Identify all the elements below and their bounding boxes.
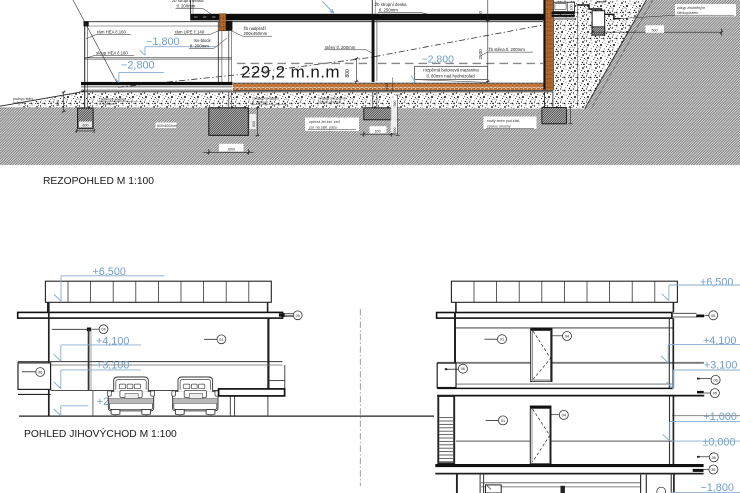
- svg-text:žb nadpraží: žb nadpraží: [244, 26, 267, 31]
- svg-text:04: 04: [565, 335, 569, 339]
- svg-text:hutněný: hutněný: [13, 101, 26, 105]
- svg-text:600: 600: [83, 124, 89, 128]
- svg-text:tl. 300mm: tl. 300mm: [252, 100, 268, 104]
- svg-text:229,2 m.n.m: 229,2 m.n.m: [241, 63, 340, 82]
- svg-text:žb stěna tl. 200mm: žb stěna tl. 200mm: [489, 47, 526, 52]
- svg-text:zal. na zákl. pásu: zal. na zákl. pásu: [309, 126, 337, 130]
- svg-text:36: 36: [712, 456, 716, 460]
- svg-text:200x450mm: 200x450mm: [244, 31, 268, 36]
- svg-text:REZOPOHLED M 1:100: REZOPOHLED M 1:100: [43, 176, 154, 187]
- svg-text:600: 600: [375, 129, 381, 133]
- svg-text:500: 500: [56, 100, 60, 106]
- svg-text:zhutněný podsyp: zhutněný podsyp: [99, 98, 126, 102]
- svg-text:tl. 200mm: tl. 200mm: [177, 4, 196, 9]
- svg-text:−1,800: −1,800: [701, 482, 734, 493]
- svg-text:05: 05: [713, 392, 717, 396]
- svg-text:tl. 200mm: tl. 200mm: [190, 43, 209, 48]
- svg-text:zemní vlhkosti: zemní vlhkosti: [318, 100, 341, 104]
- svg-text:+6,500: +6,500: [700, 277, 733, 289]
- svg-text:rám UPE č.140: rám UPE č.140: [175, 30, 205, 35]
- svg-text:500: 500: [652, 28, 658, 32]
- svg-text:zásyp zhutněným: zásyp zhutněným: [676, 6, 705, 10]
- svg-text:POHLED JIHOVÝCHOD M 1:100: POHLED JIHOVÝCHOD M 1:100: [24, 427, 177, 440]
- svg-text:štěrkopískem: štěrkopískem: [677, 11, 698, 15]
- svg-text:06: 06: [713, 378, 717, 382]
- svg-text:rozpěrná betonová mazanina: rozpěrná betonová mazanina: [423, 68, 479, 73]
- svg-text:100: 100: [569, 5, 573, 11]
- svg-text:35: 35: [711, 468, 715, 472]
- svg-text:sloup HEA č.160: sloup HEA č.160: [96, 50, 128, 55]
- svg-text:800: 800: [345, 69, 351, 78]
- svg-text:Iso-block: Iso-block: [194, 38, 212, 43]
- svg-text:01: 01: [501, 419, 505, 423]
- svg-text:+4,100: +4,100: [96, 335, 129, 347]
- svg-text:+6,500: +6,500: [93, 266, 126, 278]
- svg-text:−2,800: −2,800: [121, 59, 155, 71]
- svg-text:rám HEA č.160: rám HEA č.160: [97, 30, 127, 35]
- svg-text:300: 300: [384, 83, 389, 90]
- svg-text:tl. 250mm: tl. 250mm: [379, 7, 398, 12]
- svg-text:−1,800: −1,800: [146, 36, 180, 48]
- svg-text:rostlý terén pod zákl.: rostlý terén pod zákl.: [487, 119, 520, 123]
- svg-text:600x600mm: 600x600mm: [157, 124, 177, 128]
- svg-text:1600: 1600: [227, 147, 235, 151]
- svg-text:−2,800: −2,800: [422, 54, 455, 66]
- svg-text:800: 800: [252, 121, 256, 127]
- svg-text:tl. 300mm: tl. 300mm: [99, 102, 115, 106]
- svg-text:05: 05: [711, 314, 715, 318]
- svg-text:500: 500: [393, 101, 397, 107]
- svg-text:300: 300: [478, 11, 483, 19]
- svg-text:04: 04: [562, 413, 566, 417]
- svg-text:300: 300: [393, 128, 397, 134]
- svg-text:04: 04: [101, 328, 105, 332]
- svg-text:05: 05: [296, 314, 300, 318]
- svg-text:01: 01: [500, 338, 504, 342]
- svg-text:opěrná žel.bet. zeď: opěrná žel.bet. zeď: [309, 120, 341, 124]
- svg-text:tl. 80mm nad hydroizolací: tl. 80mm nad hydroizolací: [427, 73, 477, 78]
- svg-text:+4,100: +4,100: [703, 335, 736, 347]
- svg-text:01: 01: [219, 338, 223, 342]
- svg-text:±0,000: ±0,000: [703, 437, 736, 449]
- svg-text:spárou únosný: spárou únosný: [487, 124, 511, 128]
- svg-text:stěny tl. 200mm: stěny tl. 200mm: [325, 45, 356, 50]
- svg-text:2500: 2500: [478, 49, 483, 60]
- svg-text:06: 06: [461, 367, 465, 371]
- svg-text:06: 06: [38, 371, 42, 375]
